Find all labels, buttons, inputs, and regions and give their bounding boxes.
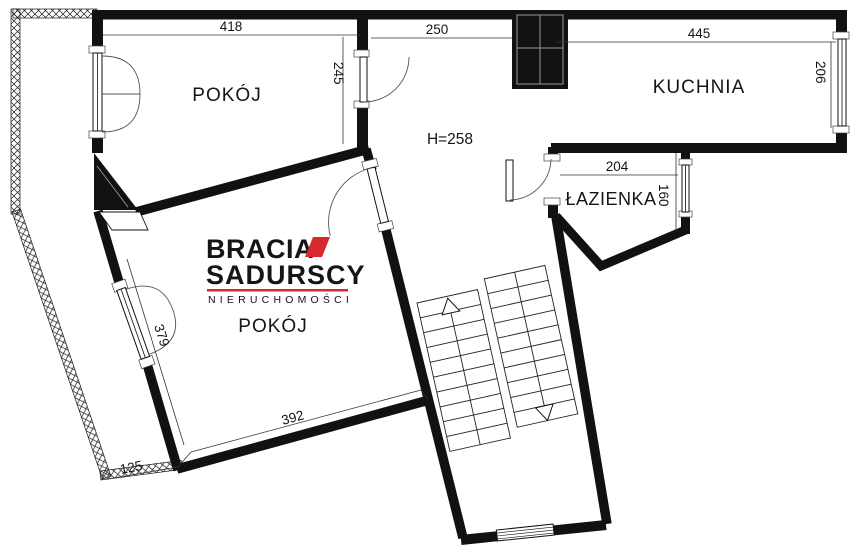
wall-room-top-bottom — [136, 149, 369, 212]
dim-hall-width: 250 — [426, 22, 449, 37]
window-kitchen-right — [833, 32, 849, 133]
logo-tagline: NIERUCHOMOŚCI — [208, 293, 353, 306]
chimney-shaft — [512, 10, 568, 89]
room-label-kitchen: KUCHNIA — [653, 77, 746, 98]
dim-bottom-room-width: 392 — [280, 407, 306, 427]
room-label-top: POKÓJ — [192, 84, 261, 106]
window-room-bottom-left — [112, 267, 188, 368]
window-room-top-left — [89, 46, 140, 138]
floor-plan-page: 418 250 445 204 245 206 160 379 392 125 … — [0, 0, 860, 552]
room-label-bottom: POKÓJ — [238, 315, 307, 337]
room-label-bathroom: ŁAZIENKA — [565, 189, 656, 209]
wall-top — [95, 10, 845, 20]
window-bathroom-right — [679, 159, 692, 217]
ceiling-height-note: H=258 — [427, 131, 473, 148]
dim-top-room-depth: 245 — [331, 62, 346, 85]
dim-kitchen-width: 445 — [688, 26, 711, 41]
wall-room-bottom — [177, 400, 429, 469]
door-hall-room-bottom — [315, 158, 394, 243]
floor-plan: 418 250 445 204 245 206 160 379 392 125 … — [0, 0, 860, 552]
door-hall-room-top — [354, 50, 409, 108]
dim-bathroom-depth: 160 — [656, 184, 671, 207]
dim-top-room-width: 418 — [220, 19, 243, 34]
window-stairwell-bottom — [496, 524, 554, 541]
staircase — [415, 265, 580, 451]
dim-bottom-room-side: 379 — [151, 322, 172, 348]
wall-bathroom-bottom — [556, 216, 688, 266]
logo-divider — [207, 289, 348, 292]
logo-line2: SADURSCY — [206, 260, 366, 290]
stairs-up-arrow-icon — [439, 296, 460, 315]
dim-bathroom-width: 204 — [606, 159, 629, 174]
door-bathroom — [506, 154, 560, 205]
wall-stairwell-left — [384, 222, 463, 538]
wall-kitchen-bottom — [551, 143, 845, 153]
logo: BRACIA SADURSCY NIERUCHOMOŚCI — [206, 234, 366, 306]
dim-kitchen-depth: 206 — [813, 61, 828, 84]
